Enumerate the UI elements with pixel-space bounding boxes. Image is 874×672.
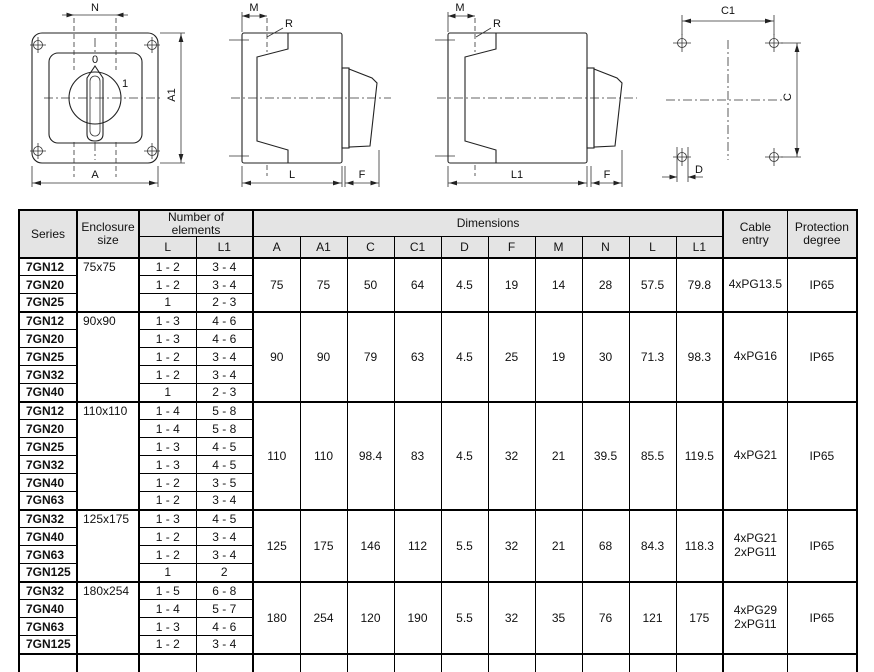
elements-l1-cell: 2 - 3: [196, 384, 253, 402]
dimension-cell: 84.3: [629, 510, 676, 582]
elements-l-cell: 1 - 2: [139, 276, 196, 294]
dimension-cell: 32: [488, 510, 535, 582]
dimension-cell: 75: [253, 258, 300, 312]
cutoff-cell: [488, 654, 535, 672]
elements-l-cell: 1: [139, 384, 196, 402]
dimension-cell: 71.3: [629, 312, 676, 402]
drill-dim-c1-label: C1: [721, 5, 735, 17]
header-col-c1: C1: [394, 237, 441, 258]
protection-cell: IP65: [787, 510, 857, 582]
handle-side: [349, 69, 377, 147]
dimension-cell: 39.5: [582, 402, 629, 510]
dimension-cell: 63: [394, 312, 441, 402]
cutoff-cell: [787, 654, 857, 672]
elements-l1-cell: 3 - 4: [196, 366, 253, 384]
header-col-l: L: [139, 237, 196, 258]
elements-l1-cell: 3 - 4: [196, 546, 253, 564]
dimension-cell: 4.5: [441, 312, 488, 402]
elements-l-cell: 1 - 4: [139, 420, 196, 438]
enclosure-size-cell: 180x254: [77, 582, 139, 654]
dimension-cell: 35: [535, 582, 582, 654]
knob-position-zero-label: 0: [92, 54, 98, 66]
table-row: 7GN32125x1751 - 34 - 51251751461125.5322…: [19, 510, 857, 528]
table-row: 7GN32180x2541 - 56 - 81802541201905.5323…: [19, 582, 857, 600]
rotary-handle-grip: [90, 76, 100, 136]
elements-l1-cell: 4 - 5: [196, 456, 253, 474]
dimension-cell: 175: [676, 582, 723, 654]
dimension-cell: 118.3: [676, 510, 723, 582]
dimension-cell: 21: [535, 510, 582, 582]
series-cell: 7GN25: [19, 438, 77, 456]
elements-l1-cell: 3 - 4: [196, 528, 253, 546]
header-col-dim-l1: L1: [676, 237, 723, 258]
dimension-cell: 90: [300, 312, 347, 402]
table-row: 7GN1290x901 - 34 - 6909079634.525193071.…: [19, 312, 857, 330]
protection-cell: IP65: [787, 258, 857, 312]
cable-entry-cell: 4xPG21: [723, 402, 787, 510]
side-long-radius-label: R: [493, 18, 501, 30]
handle-side: [594, 69, 622, 147]
side-long-dim-l1-label: L1: [511, 169, 523, 181]
cutoff-cell: [629, 654, 676, 672]
front-dim-a-label: A: [91, 169, 99, 181]
cutoff-cell: [582, 654, 629, 672]
cutoff-cell: [394, 654, 441, 672]
drill-dim-d-label: D: [695, 164, 703, 176]
series-cell: 7GN125: [19, 636, 77, 654]
header-col-m: M: [535, 237, 582, 258]
series-cell: 7GN32: [19, 510, 77, 528]
elements-l1-cell: 3 - 4: [196, 276, 253, 294]
elements-l1-cell: 3 - 4: [196, 636, 253, 654]
cutoff-cell: [347, 654, 394, 672]
dimension-cell: 5.5: [441, 510, 488, 582]
dimension-cell: 119.5: [676, 402, 723, 510]
protection-cell: IP65: [787, 312, 857, 402]
elements-l1-cell: 3 - 5: [196, 474, 253, 492]
elements-l-cell: 1 - 2: [139, 348, 196, 366]
elements-l-cell: 1 - 3: [139, 618, 196, 636]
side-long-dim-m-label: M: [455, 2, 464, 14]
elements-l-cell: 1 - 2: [139, 546, 196, 564]
elements-l1-cell: 4 - 6: [196, 330, 253, 348]
dimension-cell: 110: [300, 402, 347, 510]
series-cell: 7GN40: [19, 600, 77, 618]
rotary-handle: [87, 66, 103, 141]
header-series: Series: [19, 210, 77, 258]
header-col-l1: L1: [196, 237, 253, 258]
header-col-c: C: [347, 237, 394, 258]
dimension-cell: 110: [253, 402, 300, 510]
elements-l-cell: 1 - 2: [139, 258, 196, 276]
cutoff-cell: [723, 654, 787, 672]
dimension-cell: 98.3: [676, 312, 723, 402]
series-cell: 7GN40: [19, 528, 77, 546]
series-cell: 7GN125: [19, 564, 77, 582]
protection-cell: IP65: [787, 582, 857, 654]
dimension-cell: 64: [394, 258, 441, 312]
front-dim-n-label: N: [91, 2, 99, 14]
dimension-cell: 4.5: [441, 258, 488, 312]
side-short-dim-f-label: F: [359, 169, 366, 181]
dimension-annotations: [437, 12, 637, 187]
series-cell: 7GN63: [19, 492, 77, 510]
elements-l-cell: 1 - 2: [139, 474, 196, 492]
dimension-cell: 112: [394, 510, 441, 582]
elements-l1-cell: 5 - 8: [196, 420, 253, 438]
header-number-of-elements: Number of elements: [139, 210, 253, 237]
dimension-cell: 19: [488, 258, 535, 312]
dimension-cell: 85.5: [629, 402, 676, 510]
dimension-cell: 76: [582, 582, 629, 654]
front-view-drawing: N A1 A 0 1: [30, 2, 185, 187]
elements-l1-cell: 2 - 3: [196, 294, 253, 312]
header-col-n: N: [582, 237, 629, 258]
header-col-dim-l: L: [629, 237, 676, 258]
series-cell: 7GN63: [19, 546, 77, 564]
elements-l-cell: 1 - 5: [139, 582, 196, 600]
header-col-a1: A1: [300, 237, 347, 258]
enclosure-size-cell: 75x75: [77, 258, 139, 312]
dimension-cell: 28: [582, 258, 629, 312]
elements-l1-cell: 4 - 6: [196, 312, 253, 330]
cable-entry-cell: 4xPG16: [723, 312, 787, 402]
elements-l-cell: 1 - 3: [139, 330, 196, 348]
dimension-cell: 50: [347, 258, 394, 312]
table-row-cutoff: [19, 654, 857, 672]
dimension-cell: 75: [300, 258, 347, 312]
cutoff-cell: [19, 654, 77, 672]
cutoff-cell: [196, 654, 253, 672]
header-enclosure-size: Enclosure size: [77, 210, 139, 258]
dimension-cell: 180: [253, 582, 300, 654]
dimension-cell: 32: [488, 582, 535, 654]
header-cable-entry: Cable entry: [723, 210, 787, 258]
elements-l1-cell: 2: [196, 564, 253, 582]
series-cell: 7GN32: [19, 582, 77, 600]
series-cell: 7GN63: [19, 618, 77, 636]
elements-l-cell: 1 - 4: [139, 600, 196, 618]
dimension-cell: 146: [347, 510, 394, 582]
series-cell: 7GN40: [19, 384, 77, 402]
elements-l1-cell: 5 - 7: [196, 600, 253, 618]
elements-l-cell: 1 - 3: [139, 438, 196, 456]
elements-l-cell: 1 - 2: [139, 492, 196, 510]
elements-l-cell: 1: [139, 294, 196, 312]
cutoff-cell: [300, 654, 347, 672]
side-view-long-drawing: M R L1 F: [435, 2, 637, 187]
side-short-dim-m-label: M: [249, 2, 258, 14]
elements-l1-cell: 3 - 4: [196, 348, 253, 366]
drilling-template-drawing: C1 C D: [662, 5, 801, 182]
enclosure-size-cell: 110x110: [77, 402, 139, 510]
cutoff-cell: [676, 654, 723, 672]
dimension-cell: 120: [347, 582, 394, 654]
handle-collar-side: [342, 68, 349, 148]
series-cell: 7GN25: [19, 348, 77, 366]
elements-l1-cell: 4 - 5: [196, 438, 253, 456]
side-short-radius-label: R: [285, 18, 293, 30]
elements-l-cell: 1: [139, 564, 196, 582]
elements-l1-cell: 3 - 4: [196, 492, 253, 510]
dimension-cell: 175: [300, 510, 347, 582]
dimension-cell: 5.5: [441, 582, 488, 654]
dimension-cell: 121: [629, 582, 676, 654]
series-cell: 7GN32: [19, 366, 77, 384]
elements-l-cell: 1 - 2: [139, 636, 196, 654]
dimension-cell: 79.8: [676, 258, 723, 312]
table-row: 7GN1275x751 - 23 - 4757550644.519142857.…: [19, 258, 857, 276]
dimension-cell: 57.5: [629, 258, 676, 312]
knob-position-one-label: 1: [122, 78, 128, 90]
series-cell: 7GN12: [19, 312, 77, 330]
dimension-cell: 79: [347, 312, 394, 402]
dimension-annotations: [231, 12, 391, 187]
elements-l1-cell: 6 - 8: [196, 582, 253, 600]
cable-entry-cell: 4xPG13.5: [723, 258, 787, 312]
series-cell: 7GN12: [19, 402, 77, 420]
elements-l-cell: 1 - 2: [139, 366, 196, 384]
elements-l-cell: 1 - 3: [139, 312, 196, 330]
elements-l-cell: 1 - 3: [139, 510, 196, 528]
dimension-cell: 25: [488, 312, 535, 402]
dimension-cell: 98.4: [347, 402, 394, 510]
drill-dim-c-label: C: [782, 93, 794, 101]
table-row: 7GN12110x1101 - 45 - 811011098.4834.5322…: [19, 402, 857, 420]
cable-entry-cell: 4xPG21 2xPG11: [723, 510, 787, 582]
side-short-dim-l-label: L: [289, 169, 295, 181]
elements-l1-cell: 3 - 4: [196, 258, 253, 276]
elements-l1-cell: 4 - 5: [196, 510, 253, 528]
series-cell: 7GN20: [19, 276, 77, 294]
dimension-cell: 68: [582, 510, 629, 582]
cutoff-cell: [253, 654, 300, 672]
dimension-cell: 14: [535, 258, 582, 312]
front-dim-a1-label: A1: [166, 88, 178, 101]
dimension-cell: 254: [300, 582, 347, 654]
dimension-cell: 125: [253, 510, 300, 582]
cutoff-cell: [441, 654, 488, 672]
table-header-row-groups: Series Enclosure size Number of elements…: [19, 210, 857, 237]
header-col-f: F: [488, 237, 535, 258]
dimensions-table: Series Enclosure size Number of elements…: [18, 209, 858, 672]
side-long-dim-f-label: F: [604, 169, 611, 181]
elements-l1-cell: 5 - 8: [196, 402, 253, 420]
dimension-cell: 21: [535, 402, 582, 510]
dimension-cell: 30: [582, 312, 629, 402]
elements-l1-cell: 4 - 6: [196, 618, 253, 636]
elements-l-cell: 1 - 2: [139, 528, 196, 546]
cutoff-cell: [139, 654, 196, 672]
header-col-d: D: [441, 237, 488, 258]
dimension-cell: 4.5: [441, 402, 488, 510]
cutoff-cell: [77, 654, 139, 672]
series-cell: 7GN25: [19, 294, 77, 312]
series-cell: 7GN40: [19, 474, 77, 492]
side-view-short-drawing: M R L F: [229, 2, 391, 187]
dimension-cell: 32: [488, 402, 535, 510]
protection-cell: IP65: [787, 402, 857, 510]
header-dimensions: Dimensions: [253, 210, 723, 237]
elements-l-cell: 1 - 4: [139, 402, 196, 420]
enclosure-size-cell: 90x90: [77, 312, 139, 402]
dimension-cell: 83: [394, 402, 441, 510]
series-cell: 7GN20: [19, 330, 77, 348]
header-col-a: A: [253, 237, 300, 258]
dimension-cell: 19: [535, 312, 582, 402]
dimension-cell: 90: [253, 312, 300, 402]
handle-collar-side: [587, 68, 594, 148]
series-cell: 7GN12: [19, 258, 77, 276]
header-protection-degree: Protection degree: [787, 210, 857, 258]
series-cell: 7GN32: [19, 456, 77, 474]
dimension-annotations: [32, 13, 185, 187]
series-cell: 7GN20: [19, 420, 77, 438]
enclosure-size-cell: 125x175: [77, 510, 139, 582]
elements-l-cell: 1 - 3: [139, 456, 196, 474]
cable-entry-cell: 4xPG29 2xPG11: [723, 582, 787, 654]
drawings-panel: N A1 A 0 1 M R L F: [0, 0, 874, 200]
cutoff-cell: [535, 654, 582, 672]
dimension-cell: 190: [394, 582, 441, 654]
